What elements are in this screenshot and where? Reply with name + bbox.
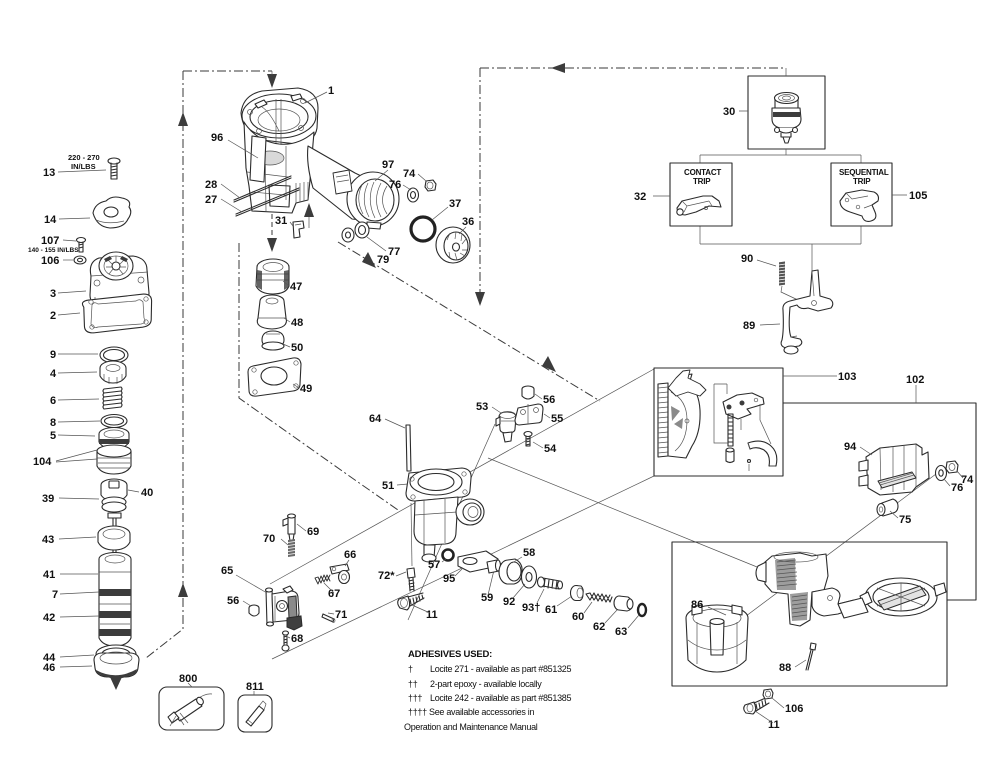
svg-text:41: 41 bbox=[43, 569, 55, 581]
svg-text:Operation and Maintenance Manu: Operation and Maintenance Manual bbox=[404, 722, 538, 732]
svg-text:39: 39 bbox=[42, 493, 54, 505]
svg-text:220 - 270: 220 - 270 bbox=[68, 153, 100, 162]
svg-text:75: 75 bbox=[899, 514, 911, 526]
svg-text:59: 59 bbox=[481, 592, 493, 604]
svg-text:106: 106 bbox=[785, 703, 803, 715]
svg-text:107: 107 bbox=[41, 235, 59, 247]
svg-text:102: 102 bbox=[906, 374, 924, 386]
svg-text:88: 88 bbox=[779, 662, 791, 674]
svg-text:9: 9 bbox=[50, 349, 56, 361]
svg-text:60: 60 bbox=[572, 611, 584, 623]
svg-text:104: 104 bbox=[33, 456, 52, 468]
svg-text:56: 56 bbox=[543, 394, 555, 406]
svg-text:2: 2 bbox=[50, 310, 56, 322]
svg-text:2-part epoxy - available local: 2-part epoxy - available locally bbox=[430, 679, 542, 689]
svg-text:66: 66 bbox=[344, 549, 356, 561]
svg-text:36: 36 bbox=[462, 216, 474, 228]
svg-text:97: 97 bbox=[382, 159, 394, 171]
svg-text:96: 96 bbox=[211, 132, 223, 144]
svg-text:106: 106 bbox=[41, 255, 59, 267]
svg-text:13: 13 bbox=[43, 167, 55, 179]
svg-text:8: 8 bbox=[50, 417, 56, 429]
svg-text:64: 64 bbox=[369, 413, 382, 425]
svg-text:ADHESIVES USED:: ADHESIVES USED: bbox=[408, 649, 492, 660]
svg-text:5: 5 bbox=[50, 430, 56, 442]
svg-text:94: 94 bbox=[844, 441, 857, 453]
svg-text:†††: ††† bbox=[408, 693, 422, 703]
svg-text:72*: 72* bbox=[378, 570, 395, 582]
svg-text:93†: 93† bbox=[522, 602, 540, 614]
svg-text:90: 90 bbox=[741, 253, 753, 265]
svg-text:†: † bbox=[408, 664, 413, 674]
svg-text:105: 105 bbox=[909, 190, 927, 202]
svg-text:6: 6 bbox=[50, 395, 56, 407]
svg-text:30: 30 bbox=[723, 106, 735, 118]
svg-text:54: 54 bbox=[544, 443, 557, 455]
svg-text:53: 53 bbox=[476, 401, 488, 413]
svg-text:47: 47 bbox=[290, 281, 302, 293]
svg-text:TRIP: TRIP bbox=[693, 177, 711, 186]
svg-text:7: 7 bbox=[52, 589, 58, 601]
svg-text:69: 69 bbox=[307, 526, 319, 538]
svg-text:63: 63 bbox=[615, 626, 627, 638]
svg-text:††: †† bbox=[408, 679, 418, 689]
svg-text:SEQUENTIAL: SEQUENTIAL bbox=[839, 168, 889, 177]
svg-text:65: 65 bbox=[221, 565, 233, 577]
svg-text:49: 49 bbox=[300, 383, 312, 395]
svg-text:76: 76 bbox=[389, 179, 401, 191]
svg-text:70: 70 bbox=[263, 533, 275, 545]
svg-text:86: 86 bbox=[691, 599, 703, 611]
svg-text:Locite 242 - available as part: Locite 242 - available as part #851385 bbox=[430, 693, 572, 703]
svg-text:3: 3 bbox=[50, 288, 56, 300]
svg-text:71: 71 bbox=[335, 609, 347, 621]
svg-text:CONTACT: CONTACT bbox=[684, 168, 721, 177]
svg-text:140 - 155 IN/LBS: 140 - 155 IN/LBS bbox=[28, 247, 79, 254]
svg-text:77: 77 bbox=[388, 246, 400, 258]
svg-text:103: 103 bbox=[838, 371, 856, 383]
svg-text:32: 32 bbox=[634, 191, 646, 203]
svg-text:IN/LBS: IN/LBS bbox=[71, 162, 96, 171]
svg-text:61: 61 bbox=[545, 604, 557, 616]
svg-text:62: 62 bbox=[593, 621, 605, 633]
svg-text:46: 46 bbox=[43, 662, 55, 674]
svg-text:74: 74 bbox=[961, 474, 974, 486]
svg-text:79: 79 bbox=[377, 254, 389, 266]
svg-text:Locite 271 - available as part: Locite 271 - available as part #851325 bbox=[430, 664, 572, 674]
svg-text:1: 1 bbox=[328, 85, 334, 97]
svg-text:67: 67 bbox=[328, 588, 340, 600]
svg-text:57: 57 bbox=[428, 559, 440, 571]
svg-text:43: 43 bbox=[42, 534, 54, 546]
svg-text:11: 11 bbox=[426, 609, 438, 621]
svg-text:27: 27 bbox=[205, 194, 217, 206]
svg-text:50: 50 bbox=[291, 342, 303, 354]
svg-text:4: 4 bbox=[50, 368, 57, 380]
svg-text:37: 37 bbox=[449, 198, 461, 210]
svg-text:68: 68 bbox=[291, 633, 303, 645]
svg-text:31: 31 bbox=[275, 215, 287, 227]
svg-text:89: 89 bbox=[743, 320, 755, 332]
svg-text:811: 811 bbox=[246, 681, 264, 693]
svg-text:56: 56 bbox=[227, 595, 239, 607]
svg-text:TRIP: TRIP bbox=[853, 177, 871, 186]
svg-text:55: 55 bbox=[551, 413, 563, 425]
svg-text:14: 14 bbox=[44, 214, 57, 226]
svg-text:95: 95 bbox=[443, 573, 455, 585]
svg-text:74: 74 bbox=[403, 168, 416, 180]
svg-text:28: 28 bbox=[205, 179, 217, 191]
svg-text:51: 51 bbox=[382, 480, 394, 492]
svg-text:†††† See available accessories: †††† See available accessories in bbox=[408, 707, 534, 717]
svg-text:48: 48 bbox=[291, 317, 303, 329]
svg-text:58: 58 bbox=[523, 547, 535, 559]
svg-text:42: 42 bbox=[43, 612, 55, 624]
svg-text:40: 40 bbox=[141, 487, 153, 499]
